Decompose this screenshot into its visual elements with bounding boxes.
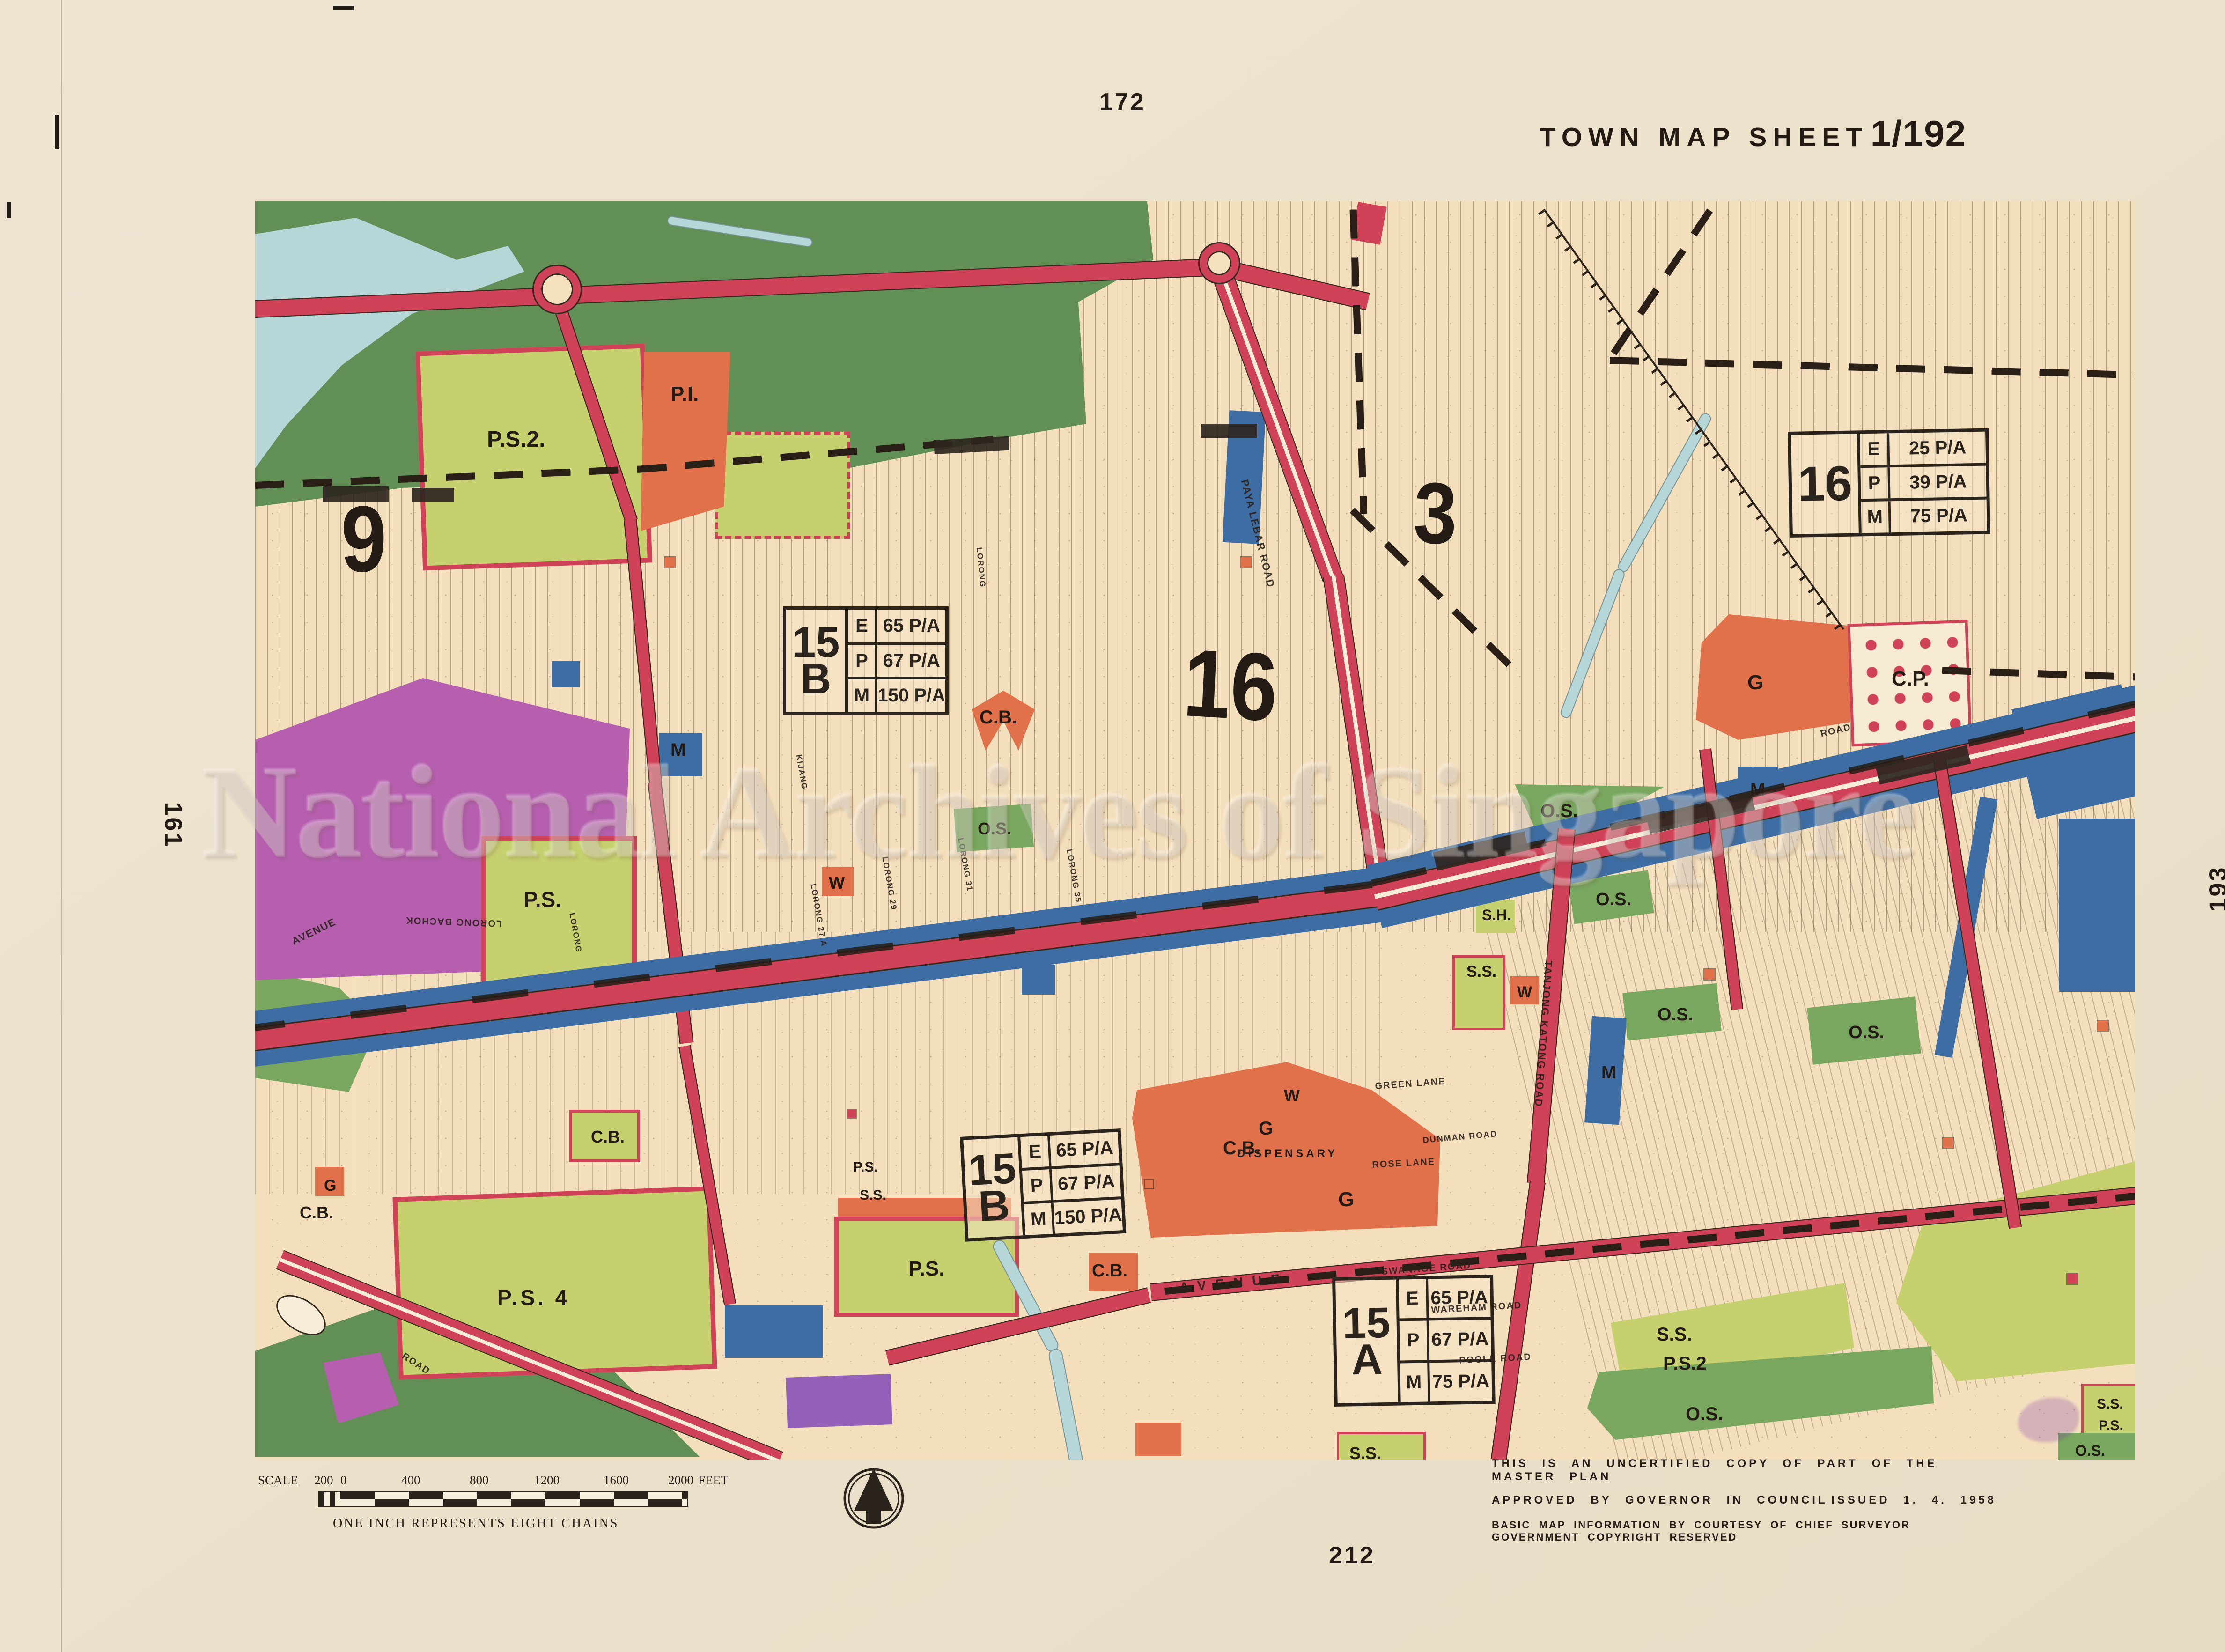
density-box-16: 16 E25 P/A P39 P/A M75 P/A [1788, 428, 1990, 538]
area-label-os: O.S. [1686, 1405, 1723, 1423]
edge-mark [7, 202, 11, 218]
density-box-zone: 15 B [963, 1137, 1023, 1239]
town-map-canvas: 15 B E65 P/A P67 P/A M150 P/A 15 B E65 P… [255, 201, 2135, 1460]
area-label-cb: C.B. [1092, 1262, 1127, 1280]
small-civic-block [1145, 1180, 1153, 1188]
note-approved: APPROVED BY GOVERNOR IN COUNCIL [1492, 1494, 1828, 1507]
area-label-os: O.S. [2075, 1443, 2105, 1458]
area-label-ss: S.S. [1657, 1325, 1692, 1344]
area-label-ss: S.S. [860, 1188, 886, 1202]
area-label-pi: P.I. [670, 384, 699, 405]
area-label-os: O.S. [1849, 1024, 1884, 1041]
area-label-cb: C.B. [980, 708, 1017, 727]
area-label-m: M [1601, 1064, 1616, 1082]
density-box-15a: 15 A E65 P/A P67 P/A M75 P/A [1332, 1275, 1496, 1407]
school-site [715, 432, 850, 539]
area-label-g: G [1747, 672, 1763, 693]
small-civic-block [1241, 557, 1251, 568]
adjacent-sheet-right: 193 [2204, 866, 2225, 912]
density-use: M [1024, 1203, 1055, 1235]
commercial-block [1022, 965, 1055, 995]
scale-tick: 800 [470, 1473, 489, 1488]
note-line-2: APPROVED BY GOVERNOR IN COUNCIL ISSUED 1… [1492, 1494, 1997, 1507]
density-value: 65 P/A [877, 615, 945, 636]
area-label-w: W [829, 875, 845, 892]
civic-block [1135, 1423, 1181, 1456]
map-sheet-paper: 172 TOWN MAP SHEET 1/192 161 193 212 [0, 0, 2225, 1652]
area-label-g: G [1338, 1189, 1354, 1210]
area-label-ps: P.S. [2099, 1419, 2123, 1433]
area-label-w: W [1284, 1087, 1300, 1104]
density-value: 39 P/A [1890, 471, 1987, 494]
civic-area-pi [641, 352, 734, 531]
north-arrow-icon [841, 1465, 906, 1533]
note-line-1: THIS IS AN UNCERTIFIED COPY OF PART OF T… [1492, 1457, 1997, 1483]
zone-number: 16 [1797, 463, 1852, 505]
density-box-zone: 16 [1791, 434, 1859, 534]
sheet-title-prefix: TOWN MAP SHEET [1540, 122, 1868, 152]
zone-number-9: 9 [341, 497, 387, 582]
density-box-zone: 15 B [786, 610, 845, 712]
adjacent-sheet-left: 161 [159, 802, 187, 848]
density-use: P [848, 645, 877, 677]
roundabout [1200, 243, 1239, 283]
small-civic-block [847, 1110, 856, 1118]
small-civic-block [1704, 969, 1715, 980]
built-up-block [1201, 424, 1257, 438]
small-civic-block [2067, 1274, 2078, 1284]
density-value: 75 P/A [1429, 1371, 1492, 1393]
density-value: 150 P/A [877, 685, 945, 706]
area-label-m: M [670, 741, 686, 760]
density-box-15b-south: 15 B E65 P/A P67 P/A M150 P/A [960, 1128, 1126, 1242]
scale-unit: FEET [698, 1473, 729, 1488]
area-label-ps: P.S. [523, 889, 561, 910]
scale-bar-graphic [318, 1491, 688, 1507]
density-use: E [1021, 1136, 1052, 1168]
area-label-ss: S.S. [1466, 964, 1496, 980]
scale-bar-main [340, 1492, 687, 1506]
certification-notes: THIS IS AN UNCERTIFIED COPY OF PART OF T… [1492, 1457, 1997, 1543]
small-civic-block [1943, 1138, 1953, 1148]
area-label-g: G [324, 1178, 336, 1194]
commercial-area [725, 1305, 823, 1358]
area-label-ps4: P.S. 4 [497, 1287, 570, 1308]
scale-bar-extension [319, 1492, 340, 1506]
built-up-block [412, 488, 454, 502]
density-value: 67 P/A [1429, 1329, 1491, 1351]
area-label-os: O.S. [1596, 891, 1631, 908]
area-label-ss: S.S. [1349, 1445, 1381, 1460]
density-table: E25 P/A P39 P/A M75 P/A [1857, 432, 1987, 533]
density-use: M [1400, 1363, 1430, 1402]
density-use: M [848, 679, 877, 712]
roundabout [534, 266, 581, 313]
edge-mark [55, 115, 59, 149]
small-civic-block [2098, 1021, 2108, 1031]
scale-tick: 1600 [604, 1473, 629, 1488]
density-value: 67 P/A [1052, 1171, 1121, 1195]
area-label-cb: C.B. [591, 1128, 625, 1145]
zone-number-3: 3 [1413, 474, 1459, 553]
density-value: 65 P/A [1050, 1137, 1119, 1162]
density-use: E [848, 610, 877, 642]
area-label-ss: S.S. [2097, 1397, 2123, 1411]
density-value: 150 P/A [1054, 1204, 1123, 1229]
commercial-area [2059, 819, 2135, 992]
density-table: E65 P/A P67 P/A M150 P/A [1018, 1132, 1123, 1235]
scale-tick: 400 [401, 1473, 420, 1488]
density-use: P [1022, 1169, 1053, 1202]
sheet-title-number: 1/192 [1871, 113, 1967, 154]
note-issued-date: ISSUED 1. 4. 1958 [1831, 1494, 1997, 1507]
scale-caption: ONE INCH REPRESENTS EIGHT CHAINS [333, 1516, 619, 1531]
density-box-15b-north: 15 B E65 P/A P67 P/A M150 P/A [783, 606, 949, 715]
edge-mark [333, 6, 354, 10]
area-label-os: O.S. [978, 820, 1011, 837]
residential-violet-area [786, 1374, 892, 1428]
area-label-cp: C.P. [1892, 669, 1929, 689]
zone-number-16: 16 [1182, 640, 1280, 731]
density-use: P [1399, 1321, 1429, 1360]
area-label-os: O.S. [1540, 802, 1578, 820]
area-label-ps: P.S. [853, 1160, 878, 1174]
commercial-block [552, 661, 580, 687]
zone-letter: B [800, 661, 831, 697]
density-value: 75 P/A [1891, 505, 1987, 528]
zone-letter: A [1351, 1341, 1383, 1378]
adjacent-sheet-top: 172 [1099, 88, 1146, 116]
density-value: 25 P/A [1889, 436, 1986, 459]
scale-tick: 1200 [534, 1473, 560, 1488]
zone-letter: B [978, 1187, 1010, 1225]
school-site-ps4 [392, 1186, 717, 1379]
scale-label: SCALE [258, 1473, 298, 1488]
density-value: 67 P/A [877, 650, 945, 671]
density-use: M [1861, 501, 1891, 533]
small-civic-block [665, 557, 675, 568]
density-table: E65 P/A P67 P/A M150 P/A [845, 610, 945, 712]
adjacent-sheet-bottom: 212 [1329, 1541, 1375, 1570]
area-label-w: W [1517, 984, 1532, 1000]
scale-tick: 2000 [668, 1473, 693, 1488]
density-use: E [1399, 1279, 1429, 1318]
note-line-3: BASIC MAP INFORMATION BY COURTESY OF CHI… [1492, 1519, 1997, 1543]
density-use: E [1860, 433, 1890, 465]
sheet-edge-line [61, 0, 62, 1652]
area-label-cb: C.B. [300, 1204, 333, 1221]
density-table: E65 P/A P67 P/A M75 P/A [1396, 1278, 1492, 1402]
area-label-dispensary: DISPENSARY [1237, 1148, 1338, 1159]
area-label-ps: P.S. [908, 1259, 944, 1279]
area-label-sh: S.H. [1482, 907, 1511, 922]
sheet-title: TOWN MAP SHEET 1/192 [1494, 112, 1967, 155]
area-label-g: G [1259, 1119, 1273, 1138]
density-use: P [1860, 467, 1890, 499]
area-label-os: O.S. [1658, 1006, 1693, 1024]
civic-area-g [1696, 614, 1853, 740]
scale-tick: 0 [340, 1473, 347, 1488]
area-label-m: M [1750, 781, 1765, 799]
area-label-ps2: P.S.2. [487, 428, 545, 451]
density-box-zone: 15 A [1335, 1280, 1398, 1403]
scale-tick: 200 [314, 1473, 333, 1488]
area-label-ps2: P.S.2 [1663, 1354, 1707, 1373]
